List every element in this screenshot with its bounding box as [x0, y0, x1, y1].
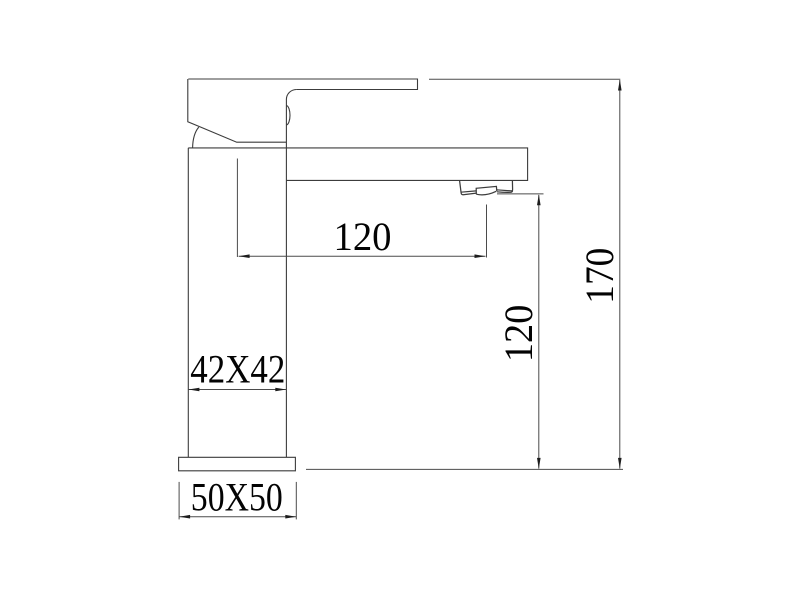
svg-text:170: 170 [577, 248, 622, 304]
svg-text:120: 120 [334, 214, 392, 259]
svg-text:120: 120 [496, 305, 541, 363]
svg-text:50X50: 50X50 [191, 474, 283, 519]
svg-text:42X42: 42X42 [190, 347, 285, 392]
